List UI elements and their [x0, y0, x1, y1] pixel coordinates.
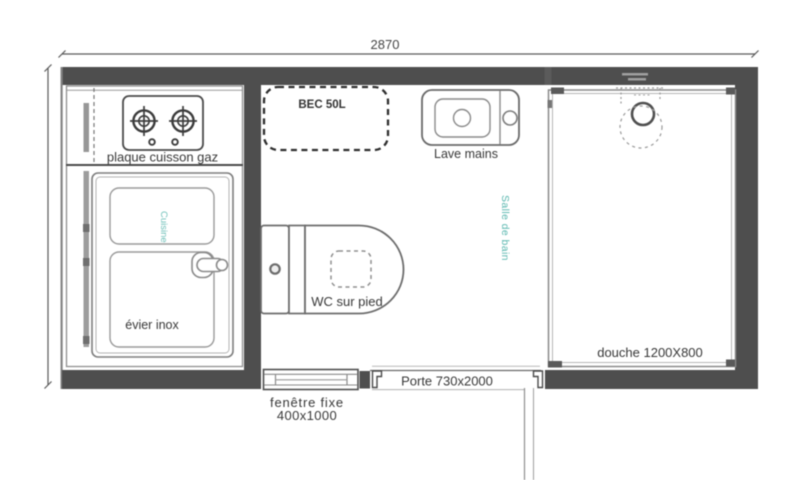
svg-text:WC sur pied: WC sur pied [311, 294, 383, 309]
svg-text:douche 1200X800: douche 1200X800 [597, 345, 703, 360]
svg-text:évier inox: évier inox [125, 318, 179, 332]
svg-text:400x1000: 400x1000 [277, 408, 337, 423]
svg-text:plaque cuisson gaz: plaque cuisson gaz [107, 150, 218, 165]
svg-text:BEC 50L: BEC 50L [298, 99, 345, 111]
svg-text:Salle de bain: Salle de bain [499, 195, 511, 261]
svg-text:Porte 730x2000: Porte 730x2000 [401, 374, 493, 389]
svg-text:Lave mains: Lave mains [434, 147, 498, 161]
svg-text:2870: 2870 [371, 37, 400, 52]
svg-text:Cuisine: Cuisine [158, 211, 169, 243]
